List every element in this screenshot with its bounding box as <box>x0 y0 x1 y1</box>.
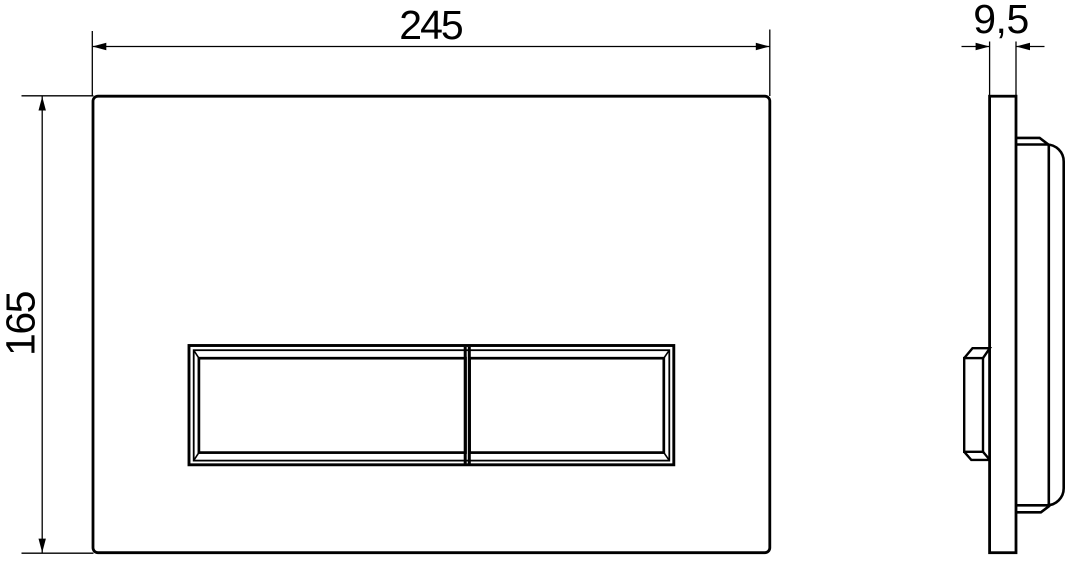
svg-text:165: 165 <box>0 291 43 356</box>
svg-text:9,5: 9,5 <box>973 0 1029 42</box>
svg-text:245: 245 <box>399 2 463 48</box>
